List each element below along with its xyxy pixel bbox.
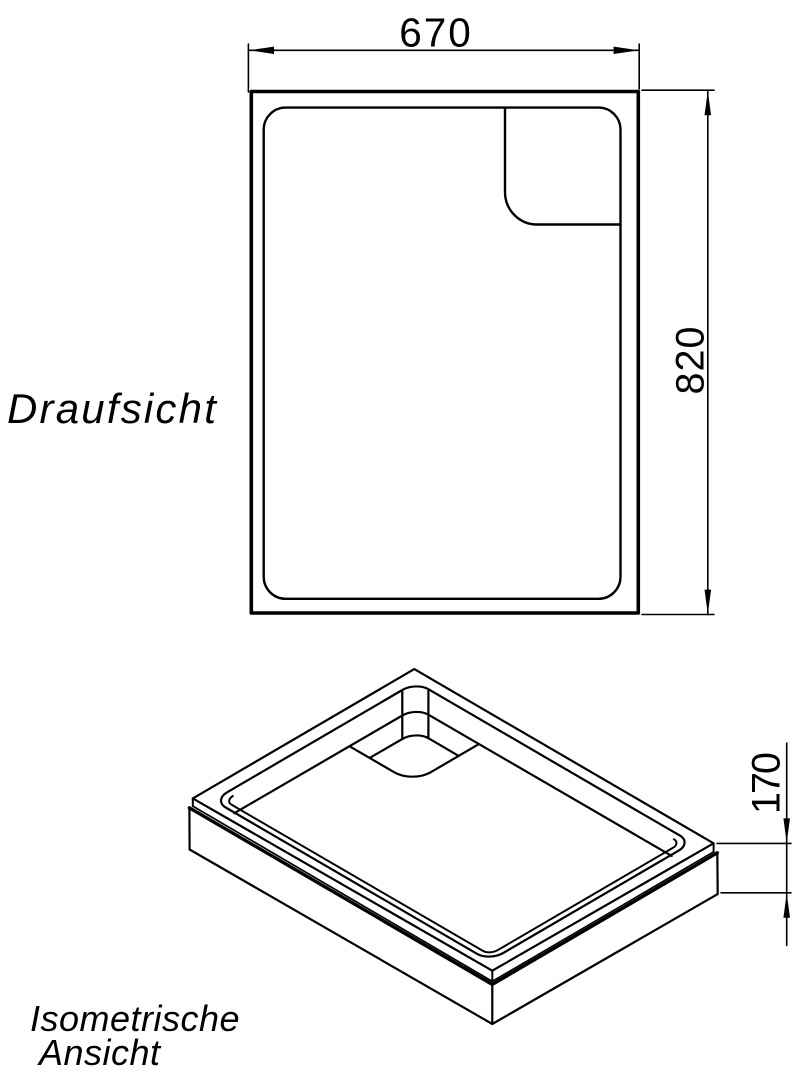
svg-text:Draufsicht: Draufsicht: [7, 385, 218, 432]
svg-text:170: 170: [745, 753, 789, 814]
svg-text:Ansicht: Ansicht: [37, 1032, 162, 1073]
svg-text:670: 670: [399, 9, 473, 55]
svg-text:820: 820: [669, 326, 713, 395]
